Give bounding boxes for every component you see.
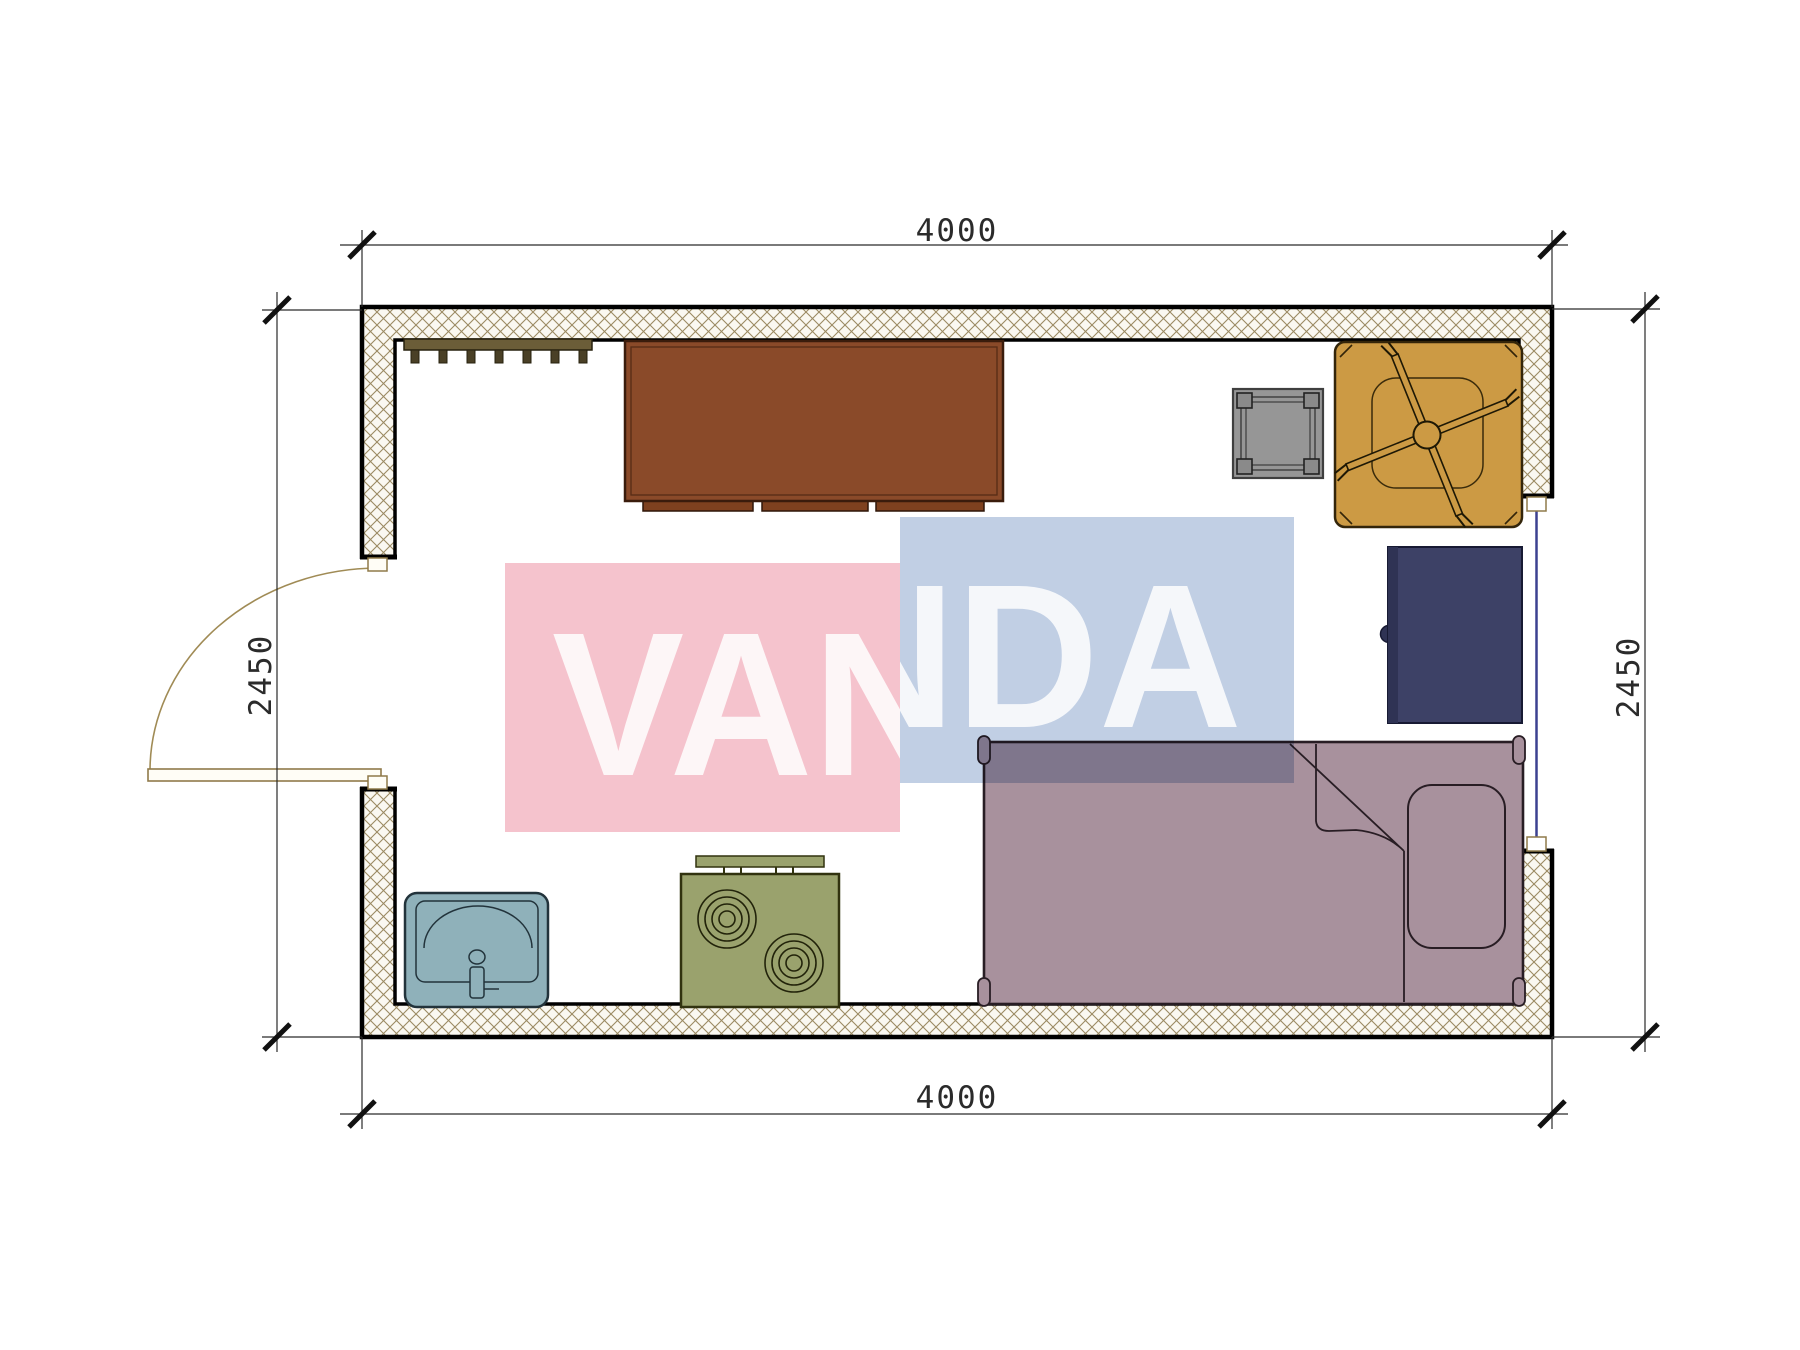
bed-pillow [1408,785,1505,948]
nightstand-door-edge [1388,547,1398,723]
nightstand [1381,547,1523,723]
door-jamb [368,776,387,789]
sink [405,893,548,1007]
desk-top [625,341,1003,501]
stove-body [681,874,839,1007]
coat-rack [404,339,592,363]
bed-post [978,978,990,1006]
desk [625,341,1003,511]
coat-hook [439,350,447,363]
stool-leg [1304,459,1319,474]
coat-hook [467,350,475,363]
dimension-left: 2450 [243,292,362,1052]
coat-hook [411,350,419,363]
coat-hook [551,350,559,363]
dim-label-top: 4000 [916,213,999,249]
window-frame [1527,837,1546,851]
stool-leg [1304,393,1319,408]
floor-plan-page: 4000 4000 2450 2450 [0,0,1800,1350]
door-jamb [368,558,387,571]
dim-label-bottom: 4000 [916,1080,999,1116]
stool-leg [1237,459,1252,474]
nightstand-body [1388,547,1522,723]
dimension-right: 2450 [1552,292,1660,1052]
dim-label-right: 2450 [1611,636,1647,719]
door-leaf [148,769,381,781]
coat-rack-bar [404,339,592,350]
fan-table [1297,305,1557,565]
coat-hook [523,350,531,363]
window-frame [1527,497,1546,511]
stool [1233,389,1323,478]
coat-hook [495,350,503,363]
stool-leg [1237,393,1252,408]
door-opening [354,559,404,787]
dimension-top: 4000 [340,213,1568,307]
floor-plan-drawing: 4000 4000 2450 2450 [0,0,1800,1350]
coat-hook [579,350,587,363]
dim-label-left: 2450 [243,634,279,717]
dimension-bottom: 4000 [340,1037,1568,1129]
bed-post [1513,736,1525,764]
stove [681,856,839,1007]
sink-faucet [470,967,484,998]
bed-post [1513,978,1525,1006]
stove-rail [696,856,824,867]
